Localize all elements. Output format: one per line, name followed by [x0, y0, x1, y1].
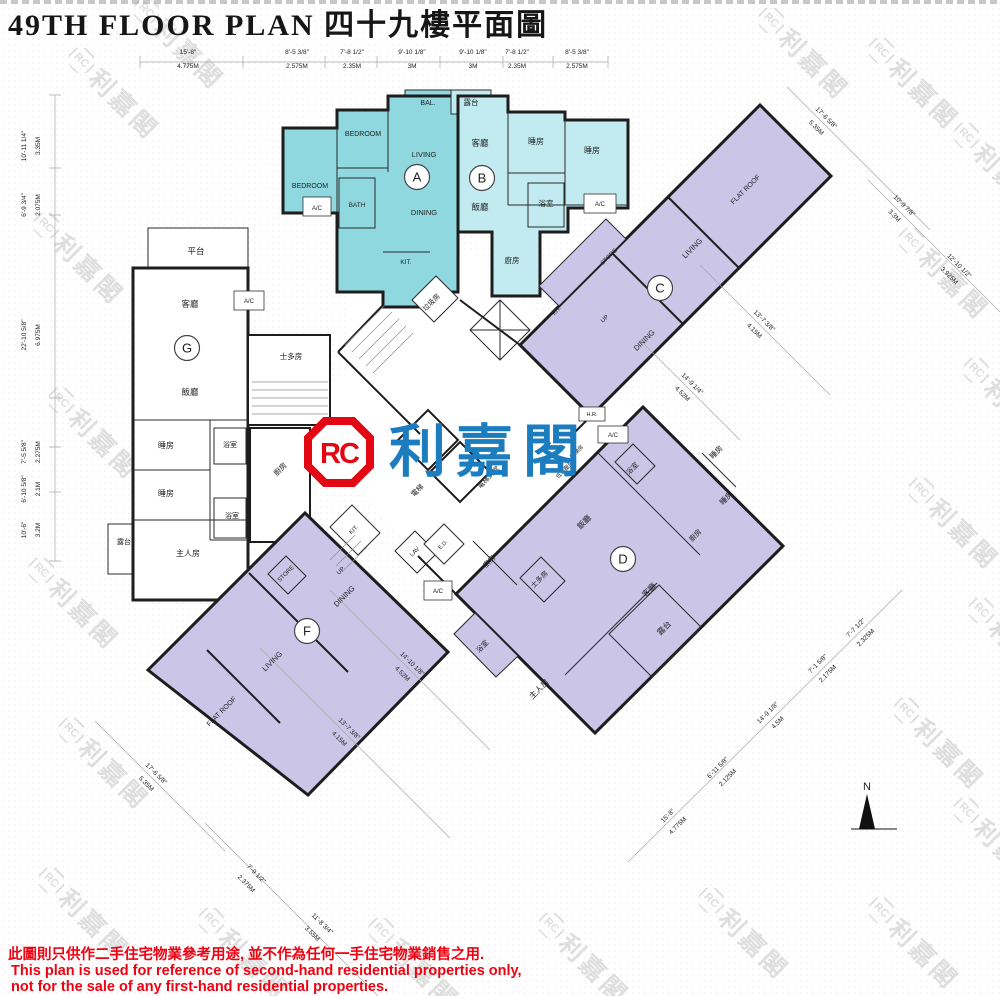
north-label: N [863, 781, 871, 793]
room-label: 平台 [187, 246, 204, 256]
dimension-ft: 7'-5 5/8" [21, 439, 28, 463]
disclaimer-line-en2: not for the sale of any first-hand resid… [8, 979, 522, 995]
room-label: 睡房 [707, 443, 725, 461]
dimension-label: 7'-8 1/2"2.35M [340, 49, 364, 70]
dimension-label: 17'-6 5/8"5.35M [134, 762, 169, 797]
dimension-m: 2.575M [286, 63, 308, 70]
room-label: 睡房 [528, 136, 544, 146]
room-label: 飯廳 [181, 387, 199, 397]
dimension-m: 2.325M [856, 628, 876, 648]
dimension-ft: 22'-10 5/8" [21, 319, 28, 351]
scan-edge-artifact [0, 0, 1000, 4]
dimension-ft: 15'-8" [180, 49, 197, 56]
dimension-label: 7'-7 1/2"2.325M [845, 617, 877, 649]
dimension-m: 3.925M [939, 266, 959, 286]
north-arrow-icon [859, 794, 875, 829]
room-label: 浴室 [539, 198, 554, 208]
unit-letter: G [182, 341, 192, 356]
dimension-ft: 10'-6" [21, 521, 28, 538]
unit-letter: D [618, 552, 627, 567]
dimension-label: 9'-10 1/8"3M [398, 49, 426, 70]
dimension-label: 6'-9 3/4"2.075M [21, 192, 42, 216]
dimension-label: 22'-10 5/8"6.975M [21, 319, 42, 351]
unit-letter: C [655, 281, 664, 296]
disclaimer-line-zh: 此圖則只供作二手住宅物業參考用途, 並不作為任何一手住宅物業銷售之用. [8, 947, 522, 963]
disclaimer: 此圖則只供作二手住宅物業參考用途, 並不作為任何一手住宅物業銷售之用. This… [8, 947, 522, 995]
room-label: 睡房 [584, 145, 600, 155]
dimension-m: 3M [407, 63, 416, 70]
dimension-m: 2.375M [236, 874, 256, 894]
room-label: 露台 [117, 537, 131, 546]
dimension-ft: 7'-8 1/2" [505, 49, 529, 56]
dimension-m: 6.975M [35, 324, 42, 346]
dimension-label: 10'-11 1/4"3.35M [21, 130, 42, 161]
dimension-m: 2.575M [566, 63, 588, 70]
dimension-m: 2.175M [818, 664, 838, 684]
dimension-label: 15'-8"4.775M [177, 49, 199, 70]
room-label: BATH [349, 202, 366, 209]
disclaimer-line-en1: This plan is used for reference of secon… [8, 963, 522, 979]
dimension-ft: 7'-8 1/2" [340, 49, 364, 56]
dimension-ft: 8'-5 3/8" [285, 49, 309, 56]
room-label: KIT. [400, 259, 411, 266]
dimension-label: 13'-7 3/8"4.15M [742, 309, 777, 344]
room-label: A/C [608, 433, 619, 439]
room-label: A/C [244, 299, 255, 305]
dimension-label: 6'-11 5/8"2.125M [706, 756, 740, 790]
unit-letter: A [413, 170, 422, 185]
rc-logo-icon: RC [303, 416, 375, 488]
dimension-label: 11'-8 3/4"3.55M [300, 912, 334, 946]
dimension-label: 7'-9 1/2"2.375M [235, 863, 267, 895]
north-arrow: N [851, 781, 897, 829]
room-label: 主人房 [527, 677, 551, 701]
dimension-m: 2.35M [343, 63, 361, 70]
dimension-ft: 6'-9 3/4" [21, 192, 28, 216]
room-label: 客廳 [471, 138, 489, 148]
dimension-m: 4.775M [177, 63, 199, 70]
dimension-label: 10'-6"3.2M [21, 521, 42, 538]
room-label: LIVING [412, 150, 437, 159]
room-label: 客廳 [181, 299, 199, 309]
dimension-ft: 9'-10 1/8" [398, 49, 426, 56]
floor-plan-drawing: BEDROOMBEDROOMLIVINGDININGBATHKIT.BAL.A/… [0, 0, 1000, 996]
dimension-m: 3.3M [886, 208, 901, 223]
dimension-label: 7'-5 5/8"2.275M [21, 439, 42, 463]
unit-letter: B [478, 171, 487, 186]
dimension-label: 7'-1 5/8"2.175M [807, 653, 839, 685]
unit-letter: F [303, 624, 311, 639]
room-label: BAL. [420, 100, 435, 107]
room-label: 露台 [464, 97, 479, 107]
dimension-m: 3.55M [303, 925, 321, 943]
room-label: 睡房 [158, 440, 174, 450]
room-label: 飯廳 [471, 202, 489, 212]
dimension-m: 2.1M [35, 482, 42, 496]
room-label: 浴室 [223, 440, 237, 449]
room-label: 睡房 [158, 488, 174, 498]
dimension-label: 8'-5 3/8"2.575M [565, 49, 589, 70]
dimension-label: 7'-8 1/2"2.35M [505, 49, 529, 70]
dimension-label: 17'-6 5/8"5.35M [804, 106, 839, 141]
floor-plan-page: 49TH FLOOR PLAN 四十九樓平面圖 RC利嘉閣RC利嘉閣RC利嘉閣R… [0, 0, 1000, 996]
dimension-m: 3M [468, 63, 477, 70]
dimension-m: 2.275M [35, 441, 42, 463]
dimension-label: 14'-9 1/4"4.52M [670, 372, 705, 407]
room-label: BEDROOM [345, 131, 381, 138]
room-label: 主人房 [176, 548, 200, 558]
dimension-m: 4.5M [770, 715, 785, 730]
rc-monogram: RC [320, 438, 360, 470]
dimension-label: 15'-8"4.775M [658, 806, 688, 836]
dimension-ft: 6'-10 5/8" [21, 475, 28, 503]
dimension-m: 2.35M [508, 63, 526, 70]
dimension-label: 9'-10 1/8"3M [459, 49, 487, 70]
room-label: BEDROOM [292, 183, 328, 190]
dimension-label: 12'-10 1/2"3.925M [936, 253, 973, 290]
dimension-ft: 8'-5 3/8" [565, 49, 589, 56]
room-label: A/C [312, 206, 323, 212]
dimension-m: 2.075M [35, 194, 42, 216]
dimension-ft: 9'-10 1/8" [459, 49, 487, 56]
dimension-m: 3.35M [35, 137, 42, 155]
dimension-label: 6'-10 5/8"2.1M [21, 475, 42, 503]
dimension-label: 8'-5 3/8"2.575M [285, 49, 309, 70]
ricacorp-logo: RC 利嘉閣 [303, 416, 590, 488]
dimension-m: 2.125M [718, 768, 738, 788]
room-label: A/C [595, 202, 606, 208]
page-title: 49TH FLOOR PLAN 四十九樓平面圖 [8, 0, 548, 44]
room-label: A/C [433, 589, 444, 595]
room-label: DINING [411, 208, 437, 217]
room-label: 廚房 [505, 255, 520, 265]
room-label: 士多房 [280, 351, 303, 361]
dimension-m: 3.2M [35, 523, 42, 537]
ricacorp-logo-text: 利嘉閣 [389, 424, 590, 481]
dimension-ft: 10'-11 1/4" [21, 130, 28, 161]
room-label: 浴室 [225, 511, 239, 520]
